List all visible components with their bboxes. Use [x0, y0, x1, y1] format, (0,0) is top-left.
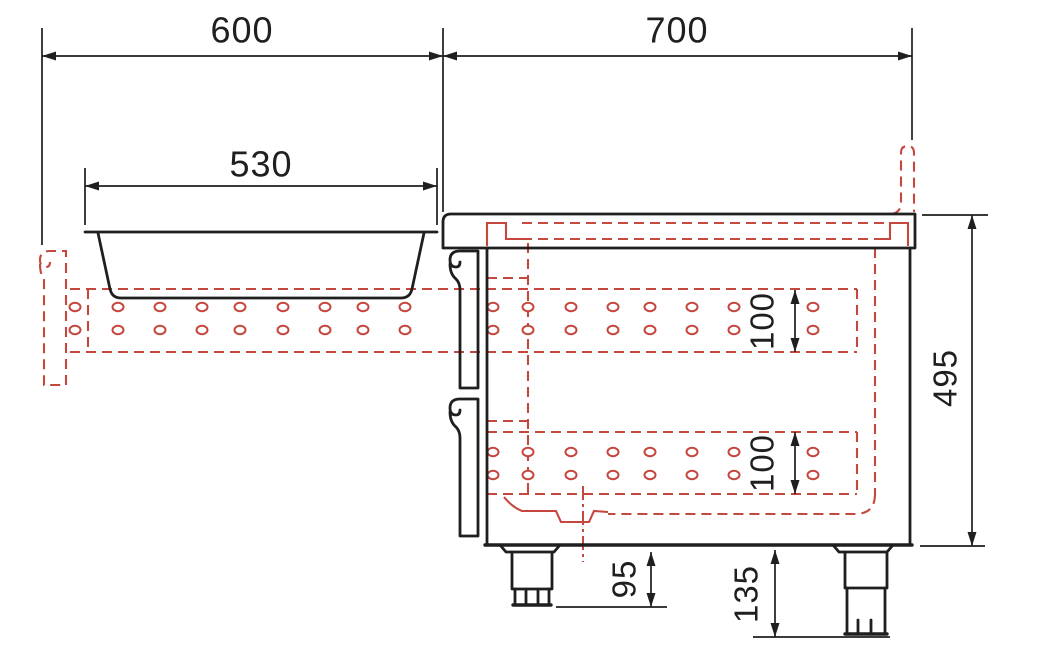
worktop-step-left	[487, 223, 522, 246]
perforation-hole	[566, 448, 577, 456]
perforation-hole	[488, 471, 499, 479]
perforation-hole	[566, 471, 577, 479]
interior-bottom	[608, 494, 875, 514]
backsplash-profile	[892, 146, 914, 214]
dim-label-95: 95	[606, 560, 643, 599]
perforation-hole	[729, 448, 740, 456]
perforation-hole	[523, 326, 534, 334]
perforation-hole	[70, 303, 81, 311]
technical-drawing: 600 700 530 495 100 100 95 135	[0, 0, 1046, 672]
perforation-hole	[645, 326, 656, 334]
perforation-hole	[523, 448, 534, 456]
dim-label-100-upper: 100	[744, 292, 781, 350]
perforation-hole	[808, 448, 819, 456]
perforation-hole	[235, 303, 246, 311]
perforation-hole	[197, 303, 208, 311]
perforation-hole	[523, 303, 534, 311]
left-rail-profile-edge	[40, 264, 66, 385]
perforation-hole	[400, 326, 411, 334]
perforation-hole	[687, 448, 698, 456]
perforation-hole	[400, 303, 411, 311]
drawing-canvas: 600 700 530 495 100 100 95 135	[0, 0, 1046, 672]
perforation-hole	[488, 448, 499, 456]
perforation-hole	[278, 303, 289, 311]
perforation-hole	[155, 303, 166, 311]
perforation-hole	[645, 471, 656, 479]
dim-label-135: 135	[728, 565, 765, 623]
perforation-hole	[608, 326, 619, 334]
dim-label-600: 600	[210, 10, 273, 51]
perforation-hole	[687, 303, 698, 311]
dimension-labels: 600 700 530 495 100 100 95 135	[210, 10, 963, 624]
perforation-hole	[687, 326, 698, 334]
solid-outlines	[85, 214, 915, 634]
perforation-hole	[566, 326, 577, 334]
perforation-hole	[488, 303, 499, 311]
dim-label-100-lower: 100	[744, 434, 781, 492]
perforation-hole	[488, 326, 499, 334]
perforation-hole	[113, 303, 124, 311]
perforation-hole	[197, 326, 208, 334]
perforation-hole	[320, 326, 331, 334]
perforation-hole	[235, 326, 246, 334]
perforation-hole	[808, 326, 819, 334]
perforation-hole	[566, 303, 577, 311]
perforation-hole	[687, 471, 698, 479]
dim-label-700: 700	[645, 10, 708, 51]
perforation-hole	[155, 326, 166, 334]
right-leg-body	[845, 552, 887, 588]
perforation-hole	[645, 303, 656, 311]
upper-drawer-front	[450, 251, 478, 388]
perforation-hole	[608, 448, 619, 456]
dim-label-495: 495	[927, 349, 964, 407]
perforation-hole	[729, 326, 740, 334]
lower-drawer-front	[450, 399, 478, 536]
perforation-hole	[278, 326, 289, 334]
perforation-hole	[523, 471, 534, 479]
worktop-step-right	[874, 223, 908, 246]
perforation-hole	[808, 471, 819, 479]
worktop	[443, 214, 915, 248]
drain-sump	[504, 497, 608, 522]
perforation-holes	[70, 303, 819, 479]
perforation-hole	[645, 448, 656, 456]
perforation-hole	[729, 471, 740, 479]
perforation-hole	[70, 326, 81, 334]
left-leg-body	[512, 552, 552, 589]
perforation-hole	[608, 471, 619, 479]
left-leg-foot	[515, 589, 549, 604]
perforation-hole	[608, 303, 619, 311]
perforation-hole	[320, 303, 331, 311]
perforation-hole	[808, 303, 819, 311]
perforation-hole	[358, 303, 369, 311]
perforation-hole	[358, 326, 369, 334]
right-leg-foot	[847, 588, 885, 633]
perforation-hole	[729, 303, 740, 311]
perforation-hole	[113, 326, 124, 334]
dim-label-530: 530	[229, 144, 292, 185]
